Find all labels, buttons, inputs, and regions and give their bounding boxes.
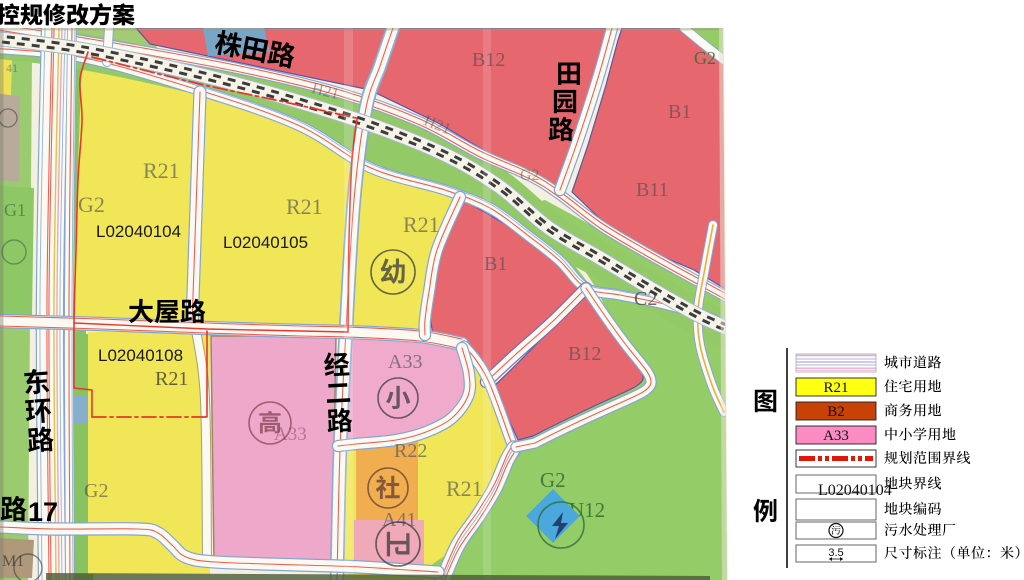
svg-text:41: 41 xyxy=(6,61,18,75)
svg-text:G2: G2 xyxy=(540,468,566,492)
svg-text:C2: C2 xyxy=(634,288,657,310)
svg-text:R21: R21 xyxy=(143,158,180,183)
svg-text:G2: G2 xyxy=(694,48,716,68)
svg-text:G2: G2 xyxy=(78,192,105,217)
svg-text:R22: R22 xyxy=(394,440,427,462)
svg-text:B12: B12 xyxy=(472,49,505,71)
svg-text:L02040104: L02040104 xyxy=(96,222,181,241)
svg-text:L02040104: L02040104 xyxy=(818,482,892,499)
svg-text:B12: B12 xyxy=(568,343,601,365)
svg-text:R21: R21 xyxy=(446,476,483,501)
svg-text:G2: G2 xyxy=(520,167,540,184)
svg-text:R21: R21 xyxy=(823,380,848,396)
svg-text:G1: G1 xyxy=(4,200,26,220)
svg-text:B11: B11 xyxy=(636,179,669,201)
svg-text:R21: R21 xyxy=(155,368,188,390)
svg-text:G2: G2 xyxy=(84,480,108,502)
svg-text:B1: B1 xyxy=(668,101,691,123)
svg-text:R21: R21 xyxy=(286,194,323,219)
svg-text:B1: B1 xyxy=(484,253,507,275)
svg-text:A33: A33 xyxy=(388,351,422,373)
svg-text:3.5: 3.5 xyxy=(828,547,843,559)
svg-text:A33: A33 xyxy=(823,428,849,444)
svg-text:A41: A41 xyxy=(382,509,416,531)
svg-text:17: 17 xyxy=(28,497,58,527)
svg-text:L02040108: L02040108 xyxy=(98,346,183,365)
svg-text:L02040105: L02040105 xyxy=(223,233,308,252)
svg-text:R21: R21 xyxy=(403,212,440,237)
svg-text:B2: B2 xyxy=(827,404,845,420)
